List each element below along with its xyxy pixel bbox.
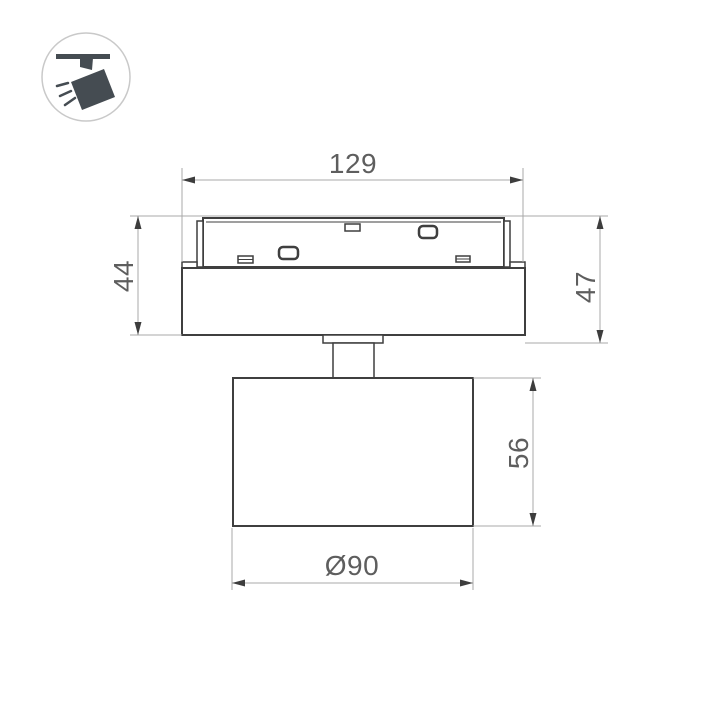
adapter-right-tab bbox=[504, 221, 510, 267]
arrow-up bbox=[530, 378, 537, 391]
dim-text-overall-width: 129 bbox=[329, 148, 377, 179]
arrow-left bbox=[232, 580, 245, 587]
adapter-left-tab bbox=[197, 221, 203, 267]
arrow-down bbox=[597, 330, 604, 343]
lamp-head-cylinder bbox=[233, 378, 473, 526]
arrow-right bbox=[510, 177, 523, 184]
arrow-right bbox=[460, 580, 473, 587]
driver-housing bbox=[182, 268, 525, 335]
arrow-down bbox=[530, 513, 537, 526]
contact-pad bbox=[279, 247, 298, 259]
arrow-up bbox=[597, 216, 604, 229]
arrow-left bbox=[182, 177, 195, 184]
dim-text-mount-height: 47 bbox=[570, 271, 601, 303]
dim-text-head-height: 56 bbox=[503, 437, 534, 469]
swivel-stem bbox=[333, 343, 374, 378]
contact-pad bbox=[345, 224, 360, 231]
fixture-outline bbox=[182, 218, 525, 526]
dim-text-body-height: 44 bbox=[108, 260, 139, 292]
track-spotlight-icon bbox=[42, 33, 130, 121]
technical-drawing: 129 44 47 56 Ø90 bbox=[0, 0, 720, 720]
arrow-down bbox=[135, 322, 142, 335]
arrow-up bbox=[135, 216, 142, 229]
swivel-collar bbox=[323, 335, 383, 343]
contact-pad bbox=[419, 226, 437, 238]
dim-text-head-diameter: Ø90 bbox=[325, 550, 379, 581]
